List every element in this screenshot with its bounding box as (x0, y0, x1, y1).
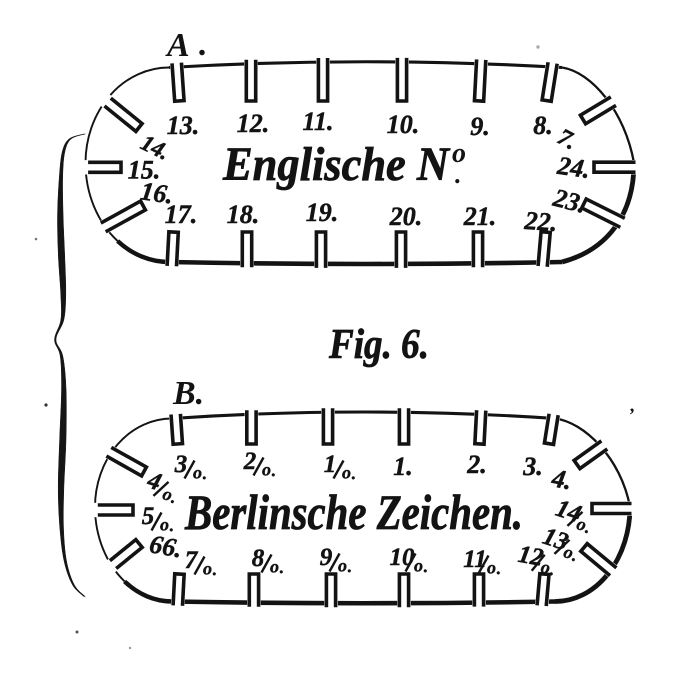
svg-text:.: . (203, 463, 208, 485)
svg-text:19.: 19. (306, 198, 339, 227)
svg-text:13.: 13. (167, 111, 200, 140)
svg-text:16.: 16. (139, 176, 175, 209)
svg-text:.: . (280, 557, 285, 579)
svg-text:.: . (199, 26, 208, 63)
svg-text:9.: 9. (470, 112, 490, 141)
svg-text:o: o (342, 463, 351, 483)
svg-text:Englische N: Englische N (222, 138, 451, 191)
svg-text:21.: 21. (463, 202, 497, 231)
svg-text:o: o (262, 460, 271, 480)
svg-text:Berlinsche Zeichen.: Berlinsche Zeichen. (184, 484, 523, 540)
svg-text:’: ’ (628, 405, 634, 426)
svg-text:.: . (455, 160, 462, 189)
svg-text:o: o (203, 559, 212, 579)
svg-text:.: . (352, 463, 357, 485)
svg-text:24.: 24. (555, 151, 592, 184)
svg-text:o: o (414, 556, 423, 576)
svg-text:B.: B. (172, 375, 204, 412)
svg-text:Fig. 6.: Fig. 6. (328, 322, 429, 368)
svg-text:10.: 10. (387, 110, 420, 139)
svg-text:.: . (424, 556, 429, 578)
svg-text:11: 11 (463, 546, 487, 573)
svg-text:10: 10 (390, 544, 416, 571)
svg-text:.: . (272, 460, 277, 482)
svg-text:3: 3 (174, 451, 188, 478)
svg-text:5: 5 (142, 503, 155, 530)
svg-text:2.: 2. (466, 450, 487, 479)
svg-text:12.: 12. (237, 109, 270, 138)
svg-text:1: 1 (324, 451, 337, 478)
svg-text:3.: 3. (522, 452, 543, 481)
svg-text:18.: 18. (227, 200, 260, 229)
svg-text:1.: 1. (393, 452, 413, 481)
svg-text:A: A (165, 27, 190, 64)
svg-text:.: . (497, 558, 502, 580)
svg-text:o: o (270, 557, 279, 577)
svg-text:o: o (338, 556, 347, 576)
svg-text:.: . (213, 559, 218, 581)
svg-text:.: . (348, 556, 353, 578)
svg-text:22.: 22. (523, 206, 558, 237)
svg-text:2: 2 (243, 448, 257, 475)
svg-text:o: o (487, 558, 496, 578)
svg-text:o: o (193, 463, 202, 483)
svg-text:66.: 66. (147, 529, 184, 563)
svg-text:20.: 20. (389, 202, 423, 231)
svg-text:8.: 8. (533, 111, 553, 140)
svg-text:11.: 11. (302, 107, 333, 136)
